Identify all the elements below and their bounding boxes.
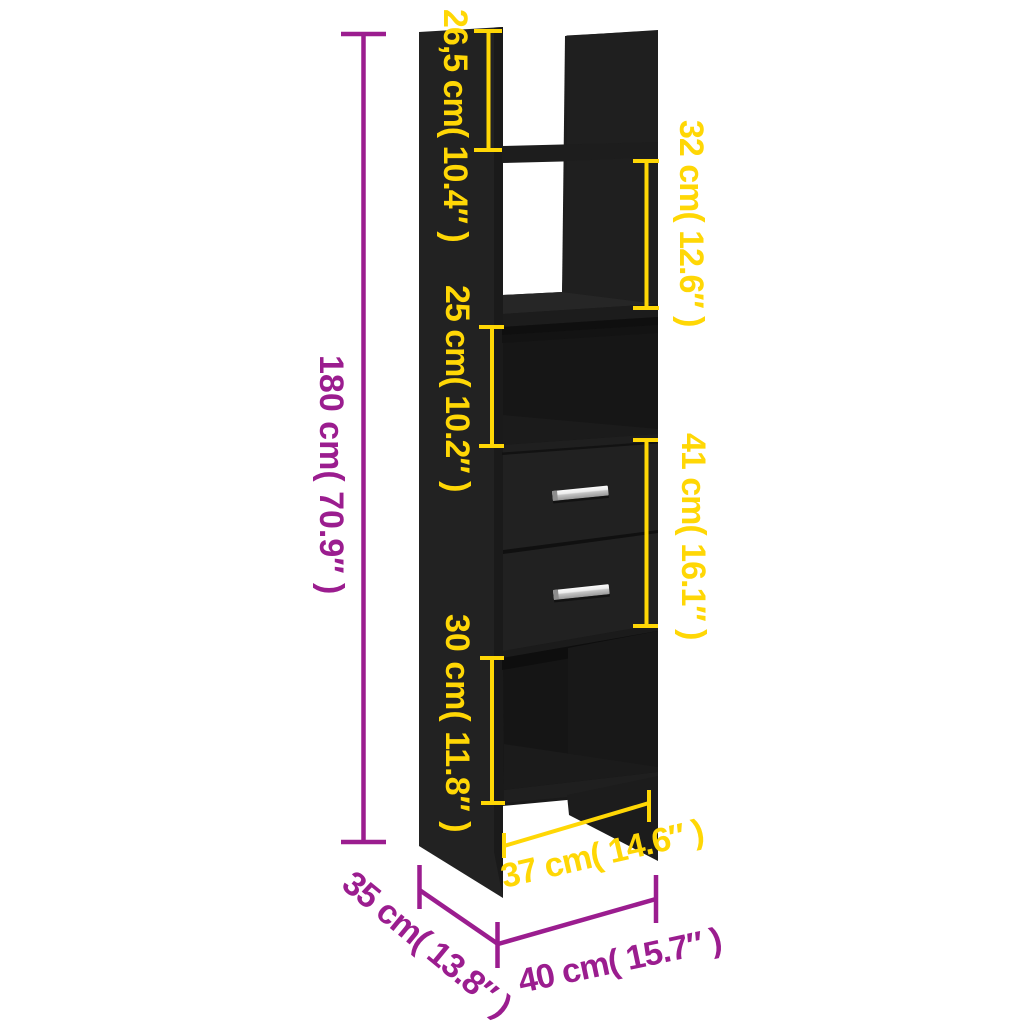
- svg-text:26,5 cm( 10.4″ ): 26,5 cm( 10.4″ ): [436, 9, 474, 242]
- svg-text:30 cm( 11.8″ ): 30 cm( 11.8″ ): [438, 614, 476, 833]
- svg-text:25 cm( 10.2″ ): 25 cm( 10.2″ ): [438, 285, 476, 491]
- svg-text:32 cm( 12.6″ ): 32 cm( 12.6″ ): [672, 120, 710, 326]
- svg-text:41 cm( 16.1″ ): 41 cm( 16.1″ ): [674, 433, 712, 639]
- svg-text:180 cm( 70.9″ ): 180 cm( 70.9″ ): [312, 355, 350, 594]
